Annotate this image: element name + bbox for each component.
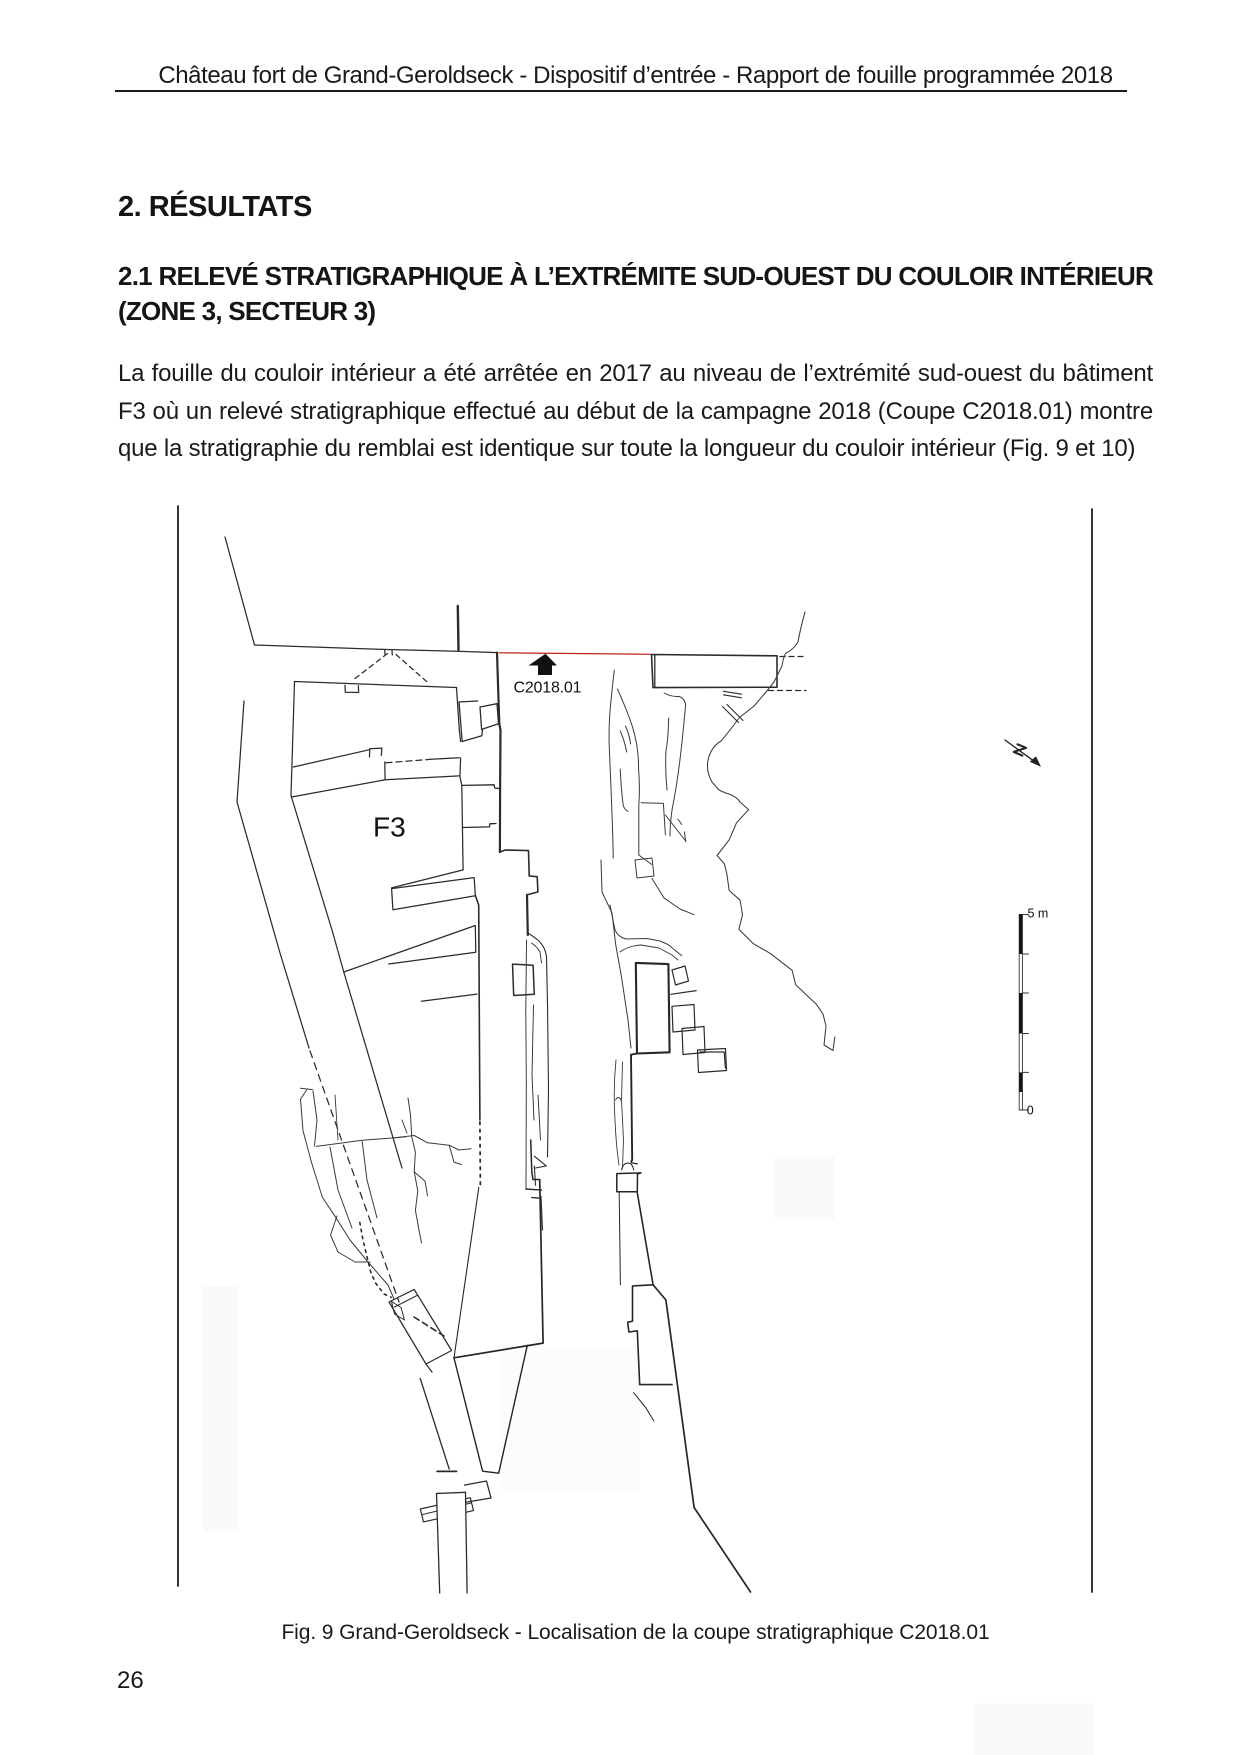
svg-text:C2018.01: C2018.01 xyxy=(514,680,582,697)
svg-text:0: 0 xyxy=(1027,1104,1034,1118)
svg-text:5 m: 5 m xyxy=(1028,907,1049,921)
svg-text:F3: F3 xyxy=(373,812,406,843)
